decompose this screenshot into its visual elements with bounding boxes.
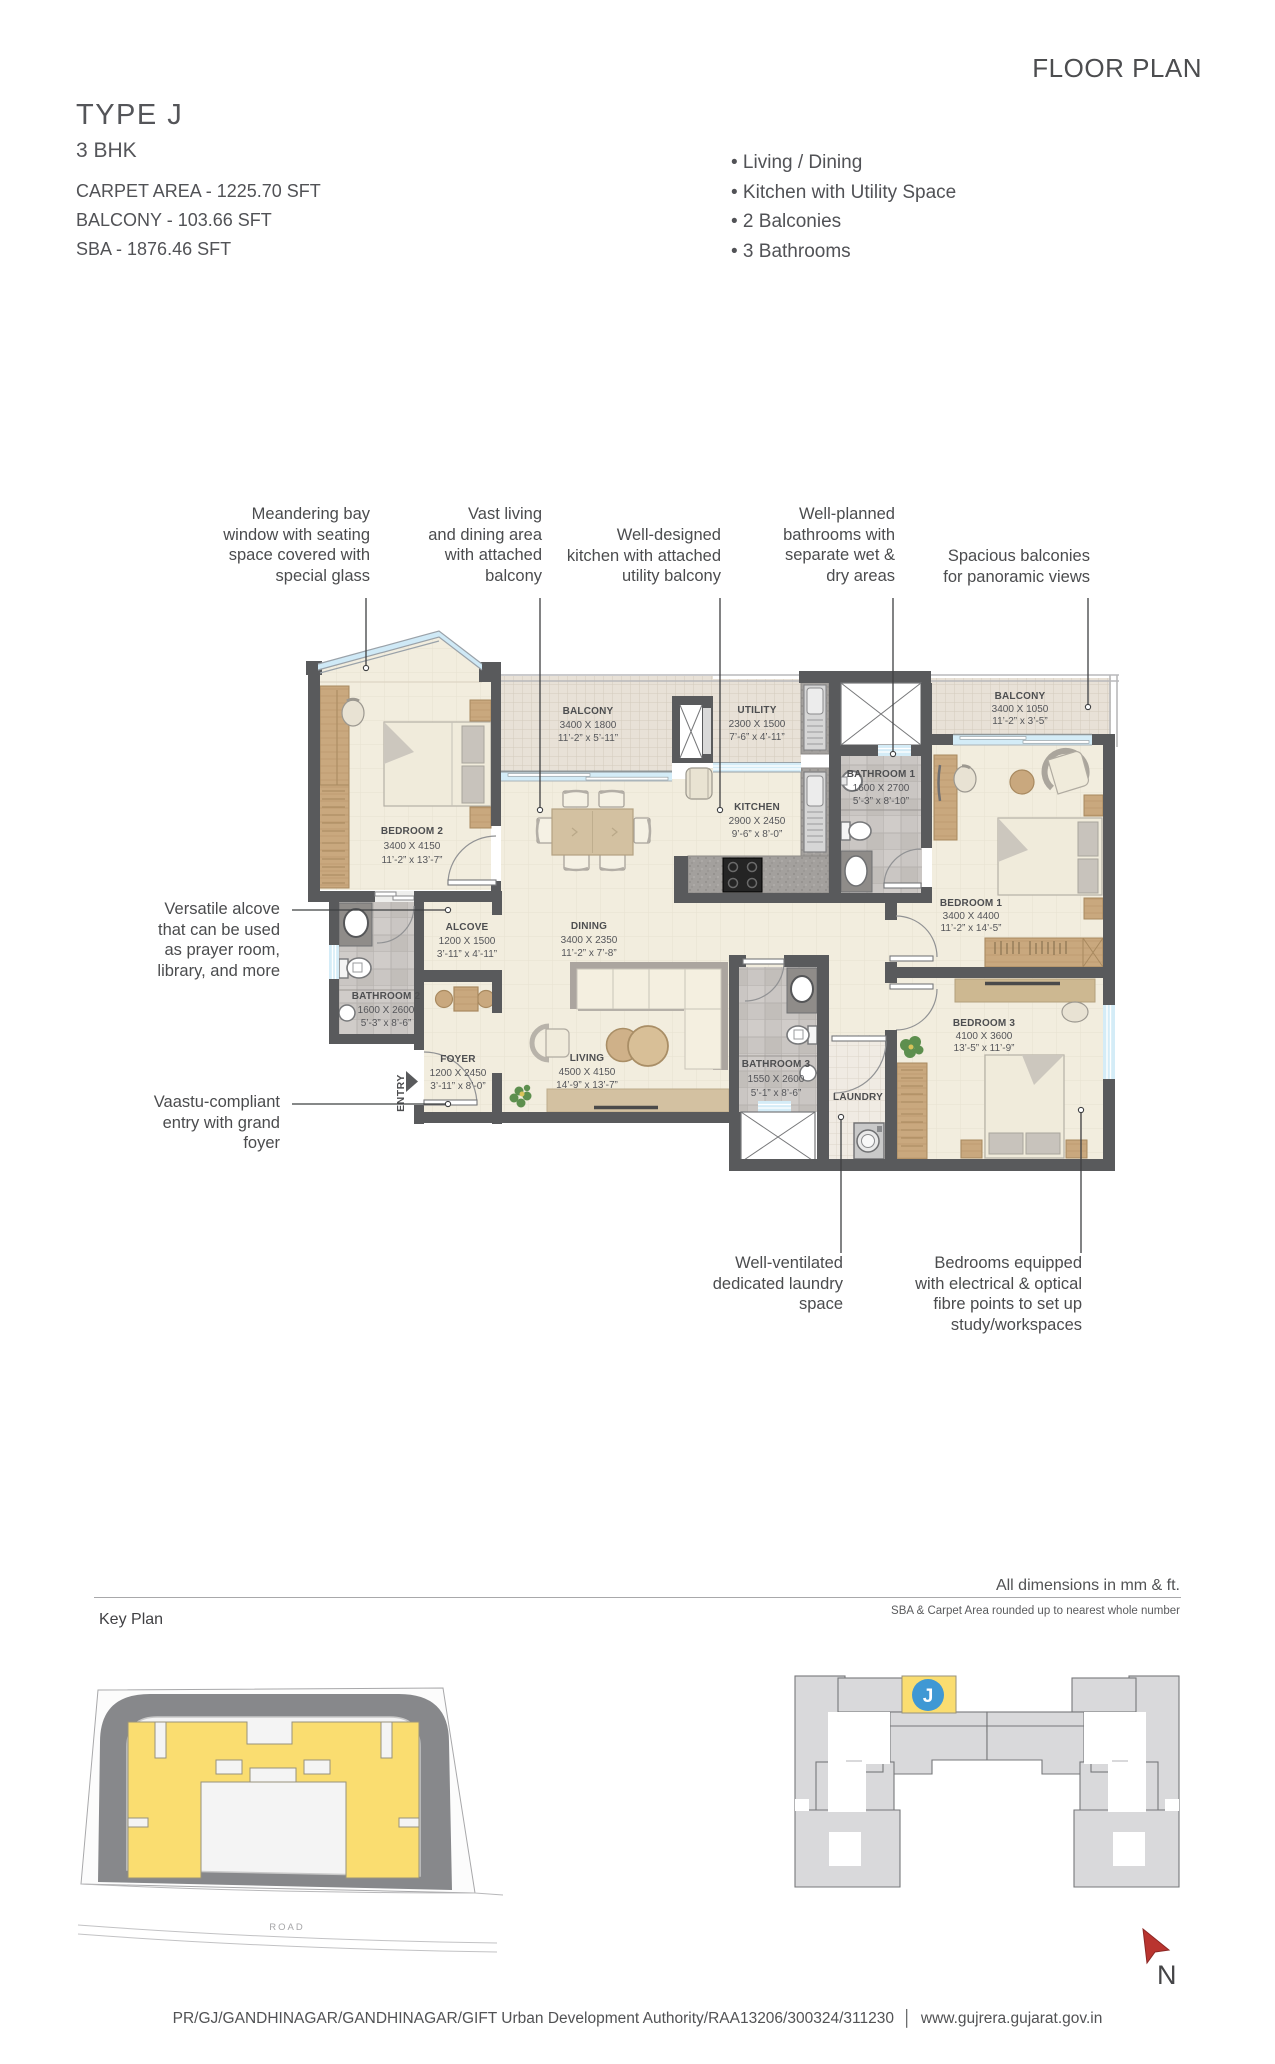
svg-text:ROAD: ROAD: [269, 1922, 304, 1933]
svg-text:N: N: [1157, 1960, 1177, 1990]
svg-text:J: J: [923, 1686, 934, 1707]
